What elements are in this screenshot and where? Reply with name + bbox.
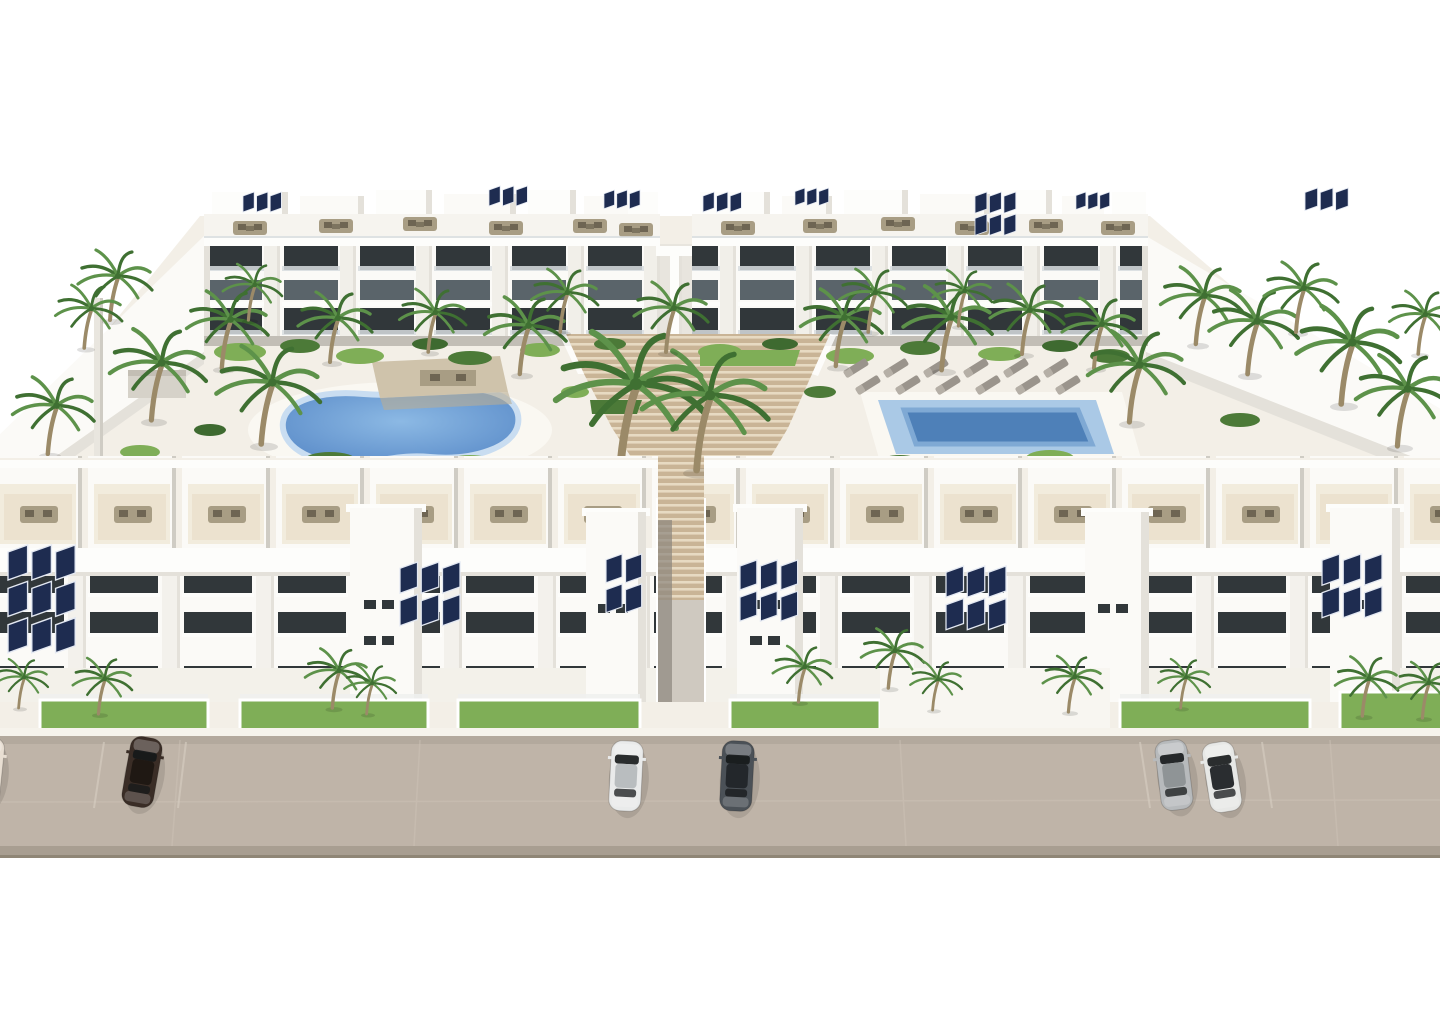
solar-panel-array bbox=[489, 186, 527, 206]
sidewalk-curb bbox=[0, 728, 1440, 736]
solar-panel-array bbox=[604, 190, 640, 209]
roof-slab bbox=[0, 548, 658, 574]
solar-panel-array bbox=[1076, 192, 1110, 210]
pergola bbox=[372, 356, 512, 410]
solar-panel-array bbox=[8, 545, 75, 653]
solar-panel-array bbox=[795, 188, 829, 206]
architectural-render bbox=[0, 0, 1440, 1024]
garden-bush bbox=[804, 386, 836, 398]
garden-bush bbox=[520, 343, 560, 357]
garden-bush bbox=[448, 351, 492, 365]
garden-bush bbox=[698, 344, 742, 360]
front-left-apartment-block bbox=[0, 456, 658, 730]
solar-panel-array bbox=[243, 192, 281, 212]
render-scene bbox=[0, 0, 1440, 1024]
private-gardens bbox=[40, 694, 640, 730]
roof-terraces bbox=[704, 456, 1440, 548]
central-alley bbox=[656, 498, 706, 702]
cornice bbox=[204, 238, 660, 246]
solar-panel-array bbox=[703, 192, 741, 212]
roof-terraces bbox=[0, 456, 658, 548]
garden-bush bbox=[336, 348, 384, 364]
white-foreground bbox=[0, 858, 1440, 1024]
cornice bbox=[692, 238, 1148, 246]
solar-panel-array bbox=[1305, 188, 1348, 211]
garden-bush bbox=[900, 341, 940, 355]
lap-pool-area bbox=[860, 392, 1142, 462]
facade bbox=[692, 246, 1148, 344]
garden-bush bbox=[194, 424, 226, 436]
garden-bush bbox=[1042, 340, 1078, 352]
garden-bush bbox=[1220, 413, 1260, 427]
garden-bush bbox=[762, 338, 798, 350]
